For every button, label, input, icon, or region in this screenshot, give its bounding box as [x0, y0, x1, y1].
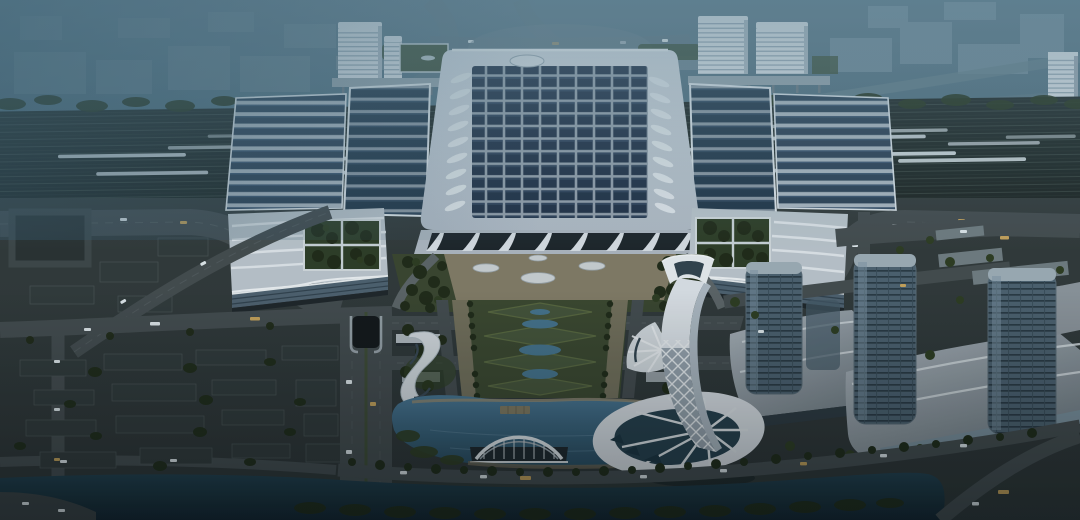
- rendering-canvas: Dusk aerial rendering of a large high-sp…: [0, 0, 1080, 520]
- atmosphere: [0, 0, 1080, 520]
- aerial-rendering: Dusk aerial rendering of a large high-sp…: [0, 0, 1080, 520]
